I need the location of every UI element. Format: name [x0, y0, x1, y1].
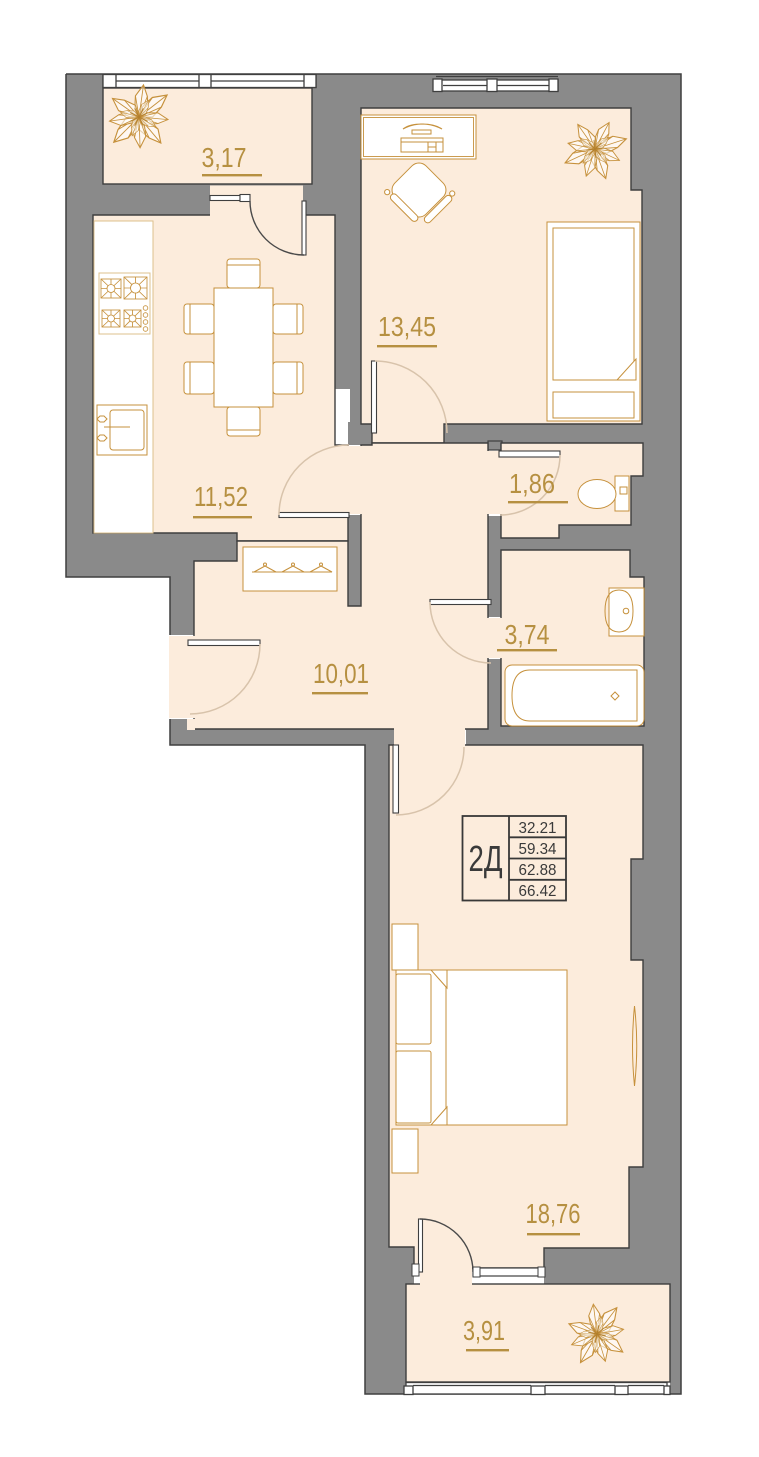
svg-text:11,52: 11,52	[194, 481, 248, 512]
svg-text:10,01: 10,01	[313, 658, 369, 689]
svg-text:62.88: 62.88	[519, 862, 557, 879]
svg-text:1,86: 1,86	[509, 468, 555, 499]
svg-text:2Д: 2Д	[469, 838, 503, 879]
svg-text:3,74: 3,74	[505, 619, 550, 650]
svg-text:66.42: 66.42	[519, 883, 557, 900]
svg-text:13,45: 13,45	[378, 311, 436, 342]
svg-text:18,76: 18,76	[526, 1198, 581, 1229]
svg-text:3,17: 3,17	[202, 142, 247, 173]
svg-text:59.34: 59.34	[519, 841, 557, 858]
svg-text:32.21: 32.21	[519, 820, 557, 837]
svg-text:3,91: 3,91	[463, 1315, 505, 1346]
